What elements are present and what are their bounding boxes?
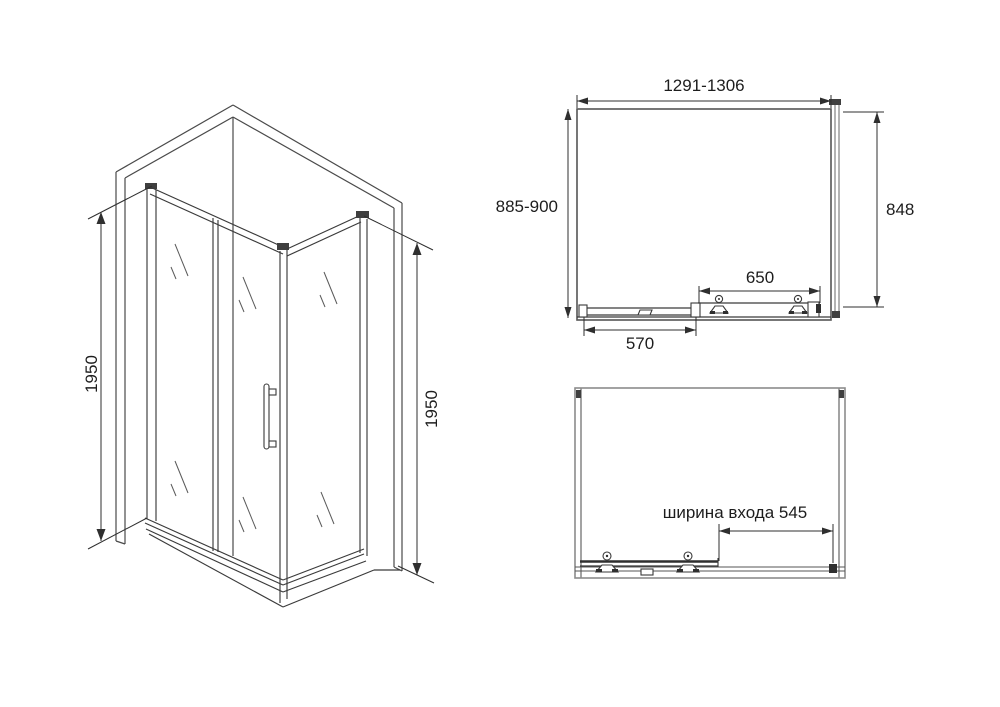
depth-range-label: 885-900	[496, 197, 558, 216]
dimension-width-range: 1291-1306	[577, 76, 831, 108]
handle-plan	[638, 310, 652, 315]
top-view: 1291-1306 885-900 848 650	[496, 76, 915, 353]
dimension-height-left: 1950	[82, 186, 152, 549]
wall-bracket	[839, 390, 844, 398]
frame-outline	[575, 388, 845, 578]
enclosure-outline	[577, 109, 831, 320]
shower-enclosure-drawing: 1950 1950	[0, 0, 1000, 707]
height-left-label: 1950	[82, 355, 101, 393]
dimension-depth-range: 885-900	[496, 109, 572, 318]
door-roller	[789, 295, 807, 314]
dimension-side-panel: 848	[843, 112, 914, 307]
wall-profiles	[116, 105, 402, 571]
door-stop	[829, 564, 837, 573]
handle-front	[641, 569, 653, 575]
dimension-fixed-panel: 570	[584, 317, 696, 353]
door-track-assembly	[580, 552, 837, 575]
door-assembly-plan	[579, 295, 821, 317]
width-range-label: 1291-1306	[663, 76, 744, 95]
door-roller	[710, 295, 728, 314]
side-panel-label: 848	[886, 200, 914, 219]
technical-drawing-page: 1950 1950	[0, 0, 1000, 707]
isometric-view: 1950 1950	[82, 105, 441, 607]
wall-bracket	[576, 390, 581, 398]
door-rail-label: 650	[746, 268, 774, 287]
entrance-width-label: ширина входа 545	[663, 503, 808, 522]
fixed-panel-label: 570	[626, 334, 654, 353]
glass-reflection-marks	[171, 244, 337, 532]
height-right-label: 1950	[422, 390, 441, 428]
front-view: ширина входа 545	[575, 388, 845, 578]
door-handle	[264, 384, 276, 449]
